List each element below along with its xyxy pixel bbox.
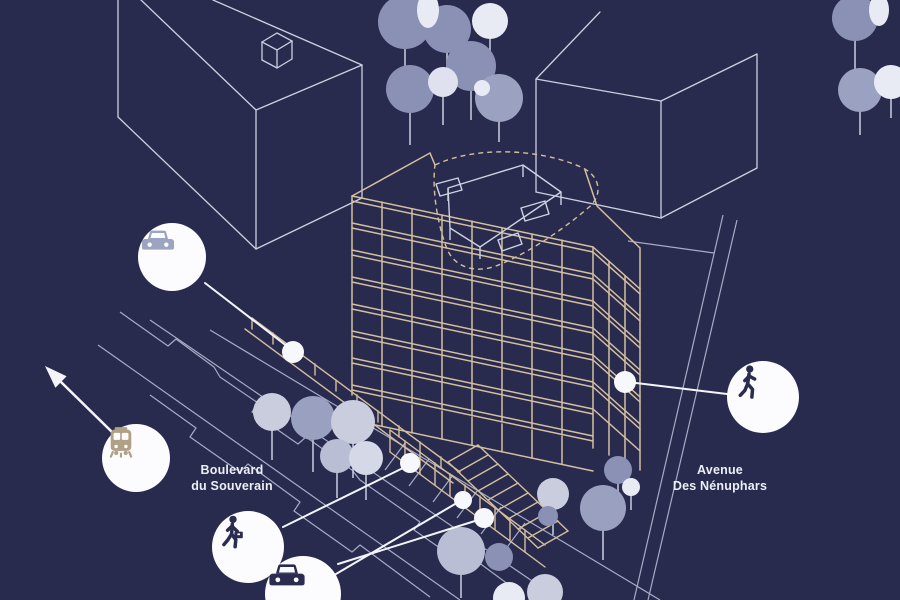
car-icon — [265, 556, 309, 600]
marker-pedestrian — [727, 361, 799, 433]
avenue-road-lines — [628, 215, 737, 600]
street-label-avenue: Avenue Des Nénuphars — [645, 462, 795, 494]
pedestrian-icon — [727, 361, 769, 403]
site-linework — [0, 0, 900, 600]
avenue-line2: Des Nénuphars — [645, 478, 795, 494]
block-building-right — [536, 12, 757, 218]
isometric-site-diagram: Boulevard du Souverain Avenue Des Nénuph… — [0, 0, 900, 600]
avenue-line1: Avenue — [645, 462, 795, 478]
block-building-left — [118, 0, 362, 249]
boulevard-line1: Boulevard — [157, 462, 307, 478]
boulevard-line2: du Souverain — [157, 478, 307, 494]
street-label-boulevard: Boulevard du Souverain — [157, 462, 307, 494]
roof-dashed-outline — [434, 152, 598, 269]
person-briefcase-icon — [212, 511, 254, 553]
car-icon — [138, 223, 178, 263]
direction-arrow — [45, 366, 112, 432]
marker-car-top — [138, 223, 206, 291]
trees — [253, 0, 900, 600]
train-icon — [102, 424, 140, 462]
